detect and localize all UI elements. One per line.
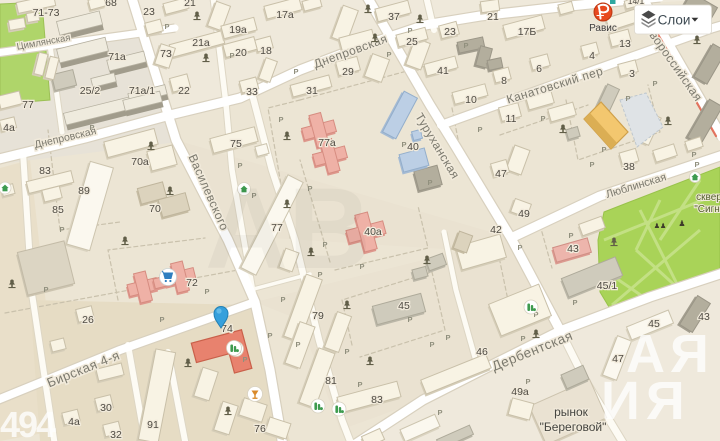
svg-text:АВ: АВ: [205, 165, 371, 293]
svg-text:Р: Р: [463, 41, 468, 50]
svg-text:32: 32: [110, 429, 122, 441]
svg-text:Р: Р: [278, 115, 283, 124]
svg-text:Р: Р: [694, 160, 699, 169]
svg-text:Р: Р: [589, 160, 594, 169]
svg-text:77: 77: [22, 99, 34, 111]
svg-text:85: 85: [52, 204, 64, 216]
svg-text:79: 79: [312, 310, 324, 322]
svg-text:Р: Р: [59, 225, 64, 234]
svg-text:Равис: Равис: [589, 23, 617, 34]
svg-text:21: 21: [184, 0, 196, 9]
svg-text:Р: Р: [229, 51, 234, 60]
svg-text:47: 47: [612, 353, 624, 365]
svg-text:26: 26: [82, 314, 94, 326]
svg-text:Р: Р: [540, 114, 545, 123]
svg-text:Р: Р: [520, 334, 525, 343]
svg-text:42: 42: [490, 224, 502, 236]
svg-text:Р: Р: [386, 50, 391, 59]
svg-text:сквер: сквер: [696, 192, 720, 203]
svg-text:6: 6: [536, 63, 542, 75]
svg-text:33: 33: [246, 86, 258, 98]
svg-text:72: 72: [186, 277, 198, 289]
svg-text:76: 76: [254, 423, 266, 435]
svg-text:30: 30: [100, 402, 112, 414]
svg-text:494: 494: [0, 404, 56, 441]
svg-text:23: 23: [444, 26, 456, 38]
svg-text:22: 22: [178, 85, 190, 97]
svg-text:41: 41: [437, 65, 449, 77]
svg-text:89: 89: [78, 185, 90, 197]
svg-text:Р: Р: [652, 79, 657, 88]
svg-text:70а: 70а: [131, 156, 149, 168]
svg-text:Р: Р: [164, 22, 169, 31]
svg-text:Р: Р: [293, 67, 298, 76]
svg-text:8: 8: [501, 75, 507, 87]
svg-text:Р: Р: [477, 125, 482, 134]
svg-text:Р: Р: [568, 231, 573, 240]
svg-text:11: 11: [506, 113, 517, 125]
svg-text:21а: 21а: [192, 37, 210, 49]
svg-text:43: 43: [698, 311, 710, 323]
svg-text:♟♟: ♟♟: [654, 222, 667, 230]
svg-text:91: 91: [147, 419, 159, 431]
svg-text:13: 13: [619, 38, 631, 50]
svg-text:21: 21: [487, 11, 499, 23]
svg-text:46: 46: [476, 346, 488, 358]
svg-text:18: 18: [260, 45, 272, 57]
svg-text:Слои: Слои: [658, 13, 691, 28]
svg-text:Р: Р: [407, 26, 412, 35]
svg-text:Р: Р: [625, 94, 630, 103]
svg-text:75: 75: [230, 138, 242, 150]
svg-text:17а: 17а: [276, 9, 294, 21]
svg-text:81: 81: [325, 375, 337, 387]
svg-text:45/1: 45/1: [597, 280, 618, 292]
svg-text:37: 37: [388, 11, 400, 23]
svg-text:17Б: 17Б: [518, 26, 537, 38]
svg-text:Р: Р: [427, 178, 432, 187]
svg-text:рынок: рынок: [554, 405, 589, 419]
svg-text:♟: ♟: [678, 219, 685, 228]
svg-text:Р: Р: [159, 315, 164, 324]
svg-text:Р: Р: [89, 123, 94, 132]
svg-text:Р: Р: [242, 355, 247, 364]
svg-text:4: 4: [589, 50, 595, 62]
svg-text:Р: Р: [517, 243, 522, 252]
svg-text:73: 73: [160, 48, 172, 60]
svg-text:83: 83: [39, 165, 51, 177]
svg-text:Р: Р: [401, 140, 406, 149]
svg-text:ИЯ: ИЯ: [601, 371, 691, 431]
svg-text:Р: Р: [357, 380, 362, 389]
svg-text:25: 25: [406, 36, 418, 48]
svg-text:25/2: 25/2: [80, 85, 101, 97]
svg-text:Р: Р: [429, 340, 434, 349]
svg-text:Р: Р: [437, 408, 442, 417]
svg-text:19а: 19а: [229, 24, 247, 36]
svg-text:Р: Р: [267, 331, 272, 340]
svg-text:40: 40: [407, 141, 419, 153]
svg-text:10: 10: [465, 94, 477, 106]
svg-text:43: 43: [567, 243, 579, 255]
svg-text:70: 70: [149, 203, 161, 215]
svg-text:4а: 4а: [3, 122, 15, 134]
svg-text:4а: 4а: [68, 416, 80, 428]
svg-text:77а: 77а: [318, 137, 336, 149]
svg-text:Р: Р: [445, 333, 450, 342]
svg-text:Р: Р: [280, 295, 285, 304]
svg-text:Р: Р: [295, 340, 300, 349]
svg-text:83: 83: [371, 394, 383, 406]
svg-text:23: 23: [143, 6, 155, 18]
svg-text:Р: Р: [43, 285, 48, 294]
svg-text:31: 31: [306, 85, 318, 97]
svg-text:45: 45: [398, 300, 410, 312]
svg-text:71а: 71а: [108, 51, 126, 63]
svg-text:Р: Р: [572, 298, 577, 307]
svg-text:68: 68: [105, 0, 117, 9]
svg-text:Р: Р: [525, 377, 530, 386]
svg-text:20: 20: [235, 47, 247, 59]
svg-text:71-73: 71-73: [33, 7, 60, 19]
svg-text:71а/1: 71а/1: [129, 85, 155, 97]
svg-text:38: 38: [623, 161, 635, 173]
svg-text:"Береговой": "Береговой": [540, 420, 607, 434]
svg-text:Р: Р: [344, 347, 349, 356]
svg-text:Р: Р: [601, 145, 606, 154]
svg-text:3: 3: [629, 68, 635, 80]
svg-text:"Сигн: "Сигн: [694, 204, 720, 215]
svg-text:Р: Р: [407, 315, 412, 324]
svg-text:Р: Р: [691, 150, 696, 159]
svg-text:49а: 49а: [511, 386, 529, 398]
svg-text:29: 29: [342, 66, 354, 78]
svg-text:47: 47: [495, 168, 507, 180]
svg-text:49: 49: [518, 208, 530, 220]
